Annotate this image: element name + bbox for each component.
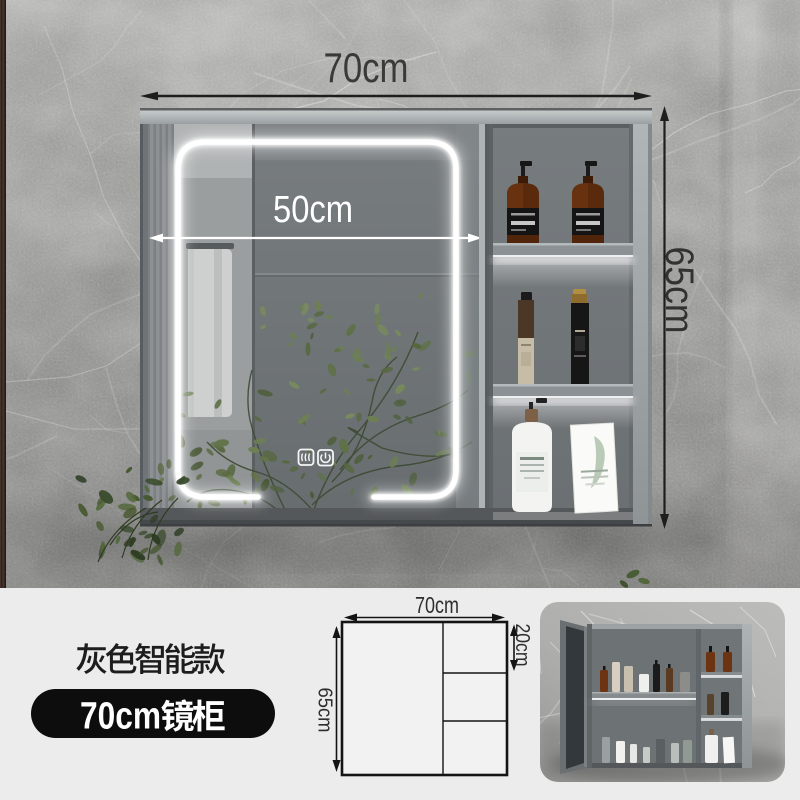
svg-text:70cm: 70cm [415, 592, 459, 618]
svg-text:70cm: 70cm [80, 696, 161, 738]
svg-text:65cm: 65cm [314, 688, 336, 733]
svg-text:20cm: 20cm [511, 624, 533, 667]
svg-text:50cm: 50cm [273, 189, 353, 231]
svg-text:70cm: 70cm [324, 44, 409, 91]
svg-text:65cm: 65cm [657, 247, 701, 334]
